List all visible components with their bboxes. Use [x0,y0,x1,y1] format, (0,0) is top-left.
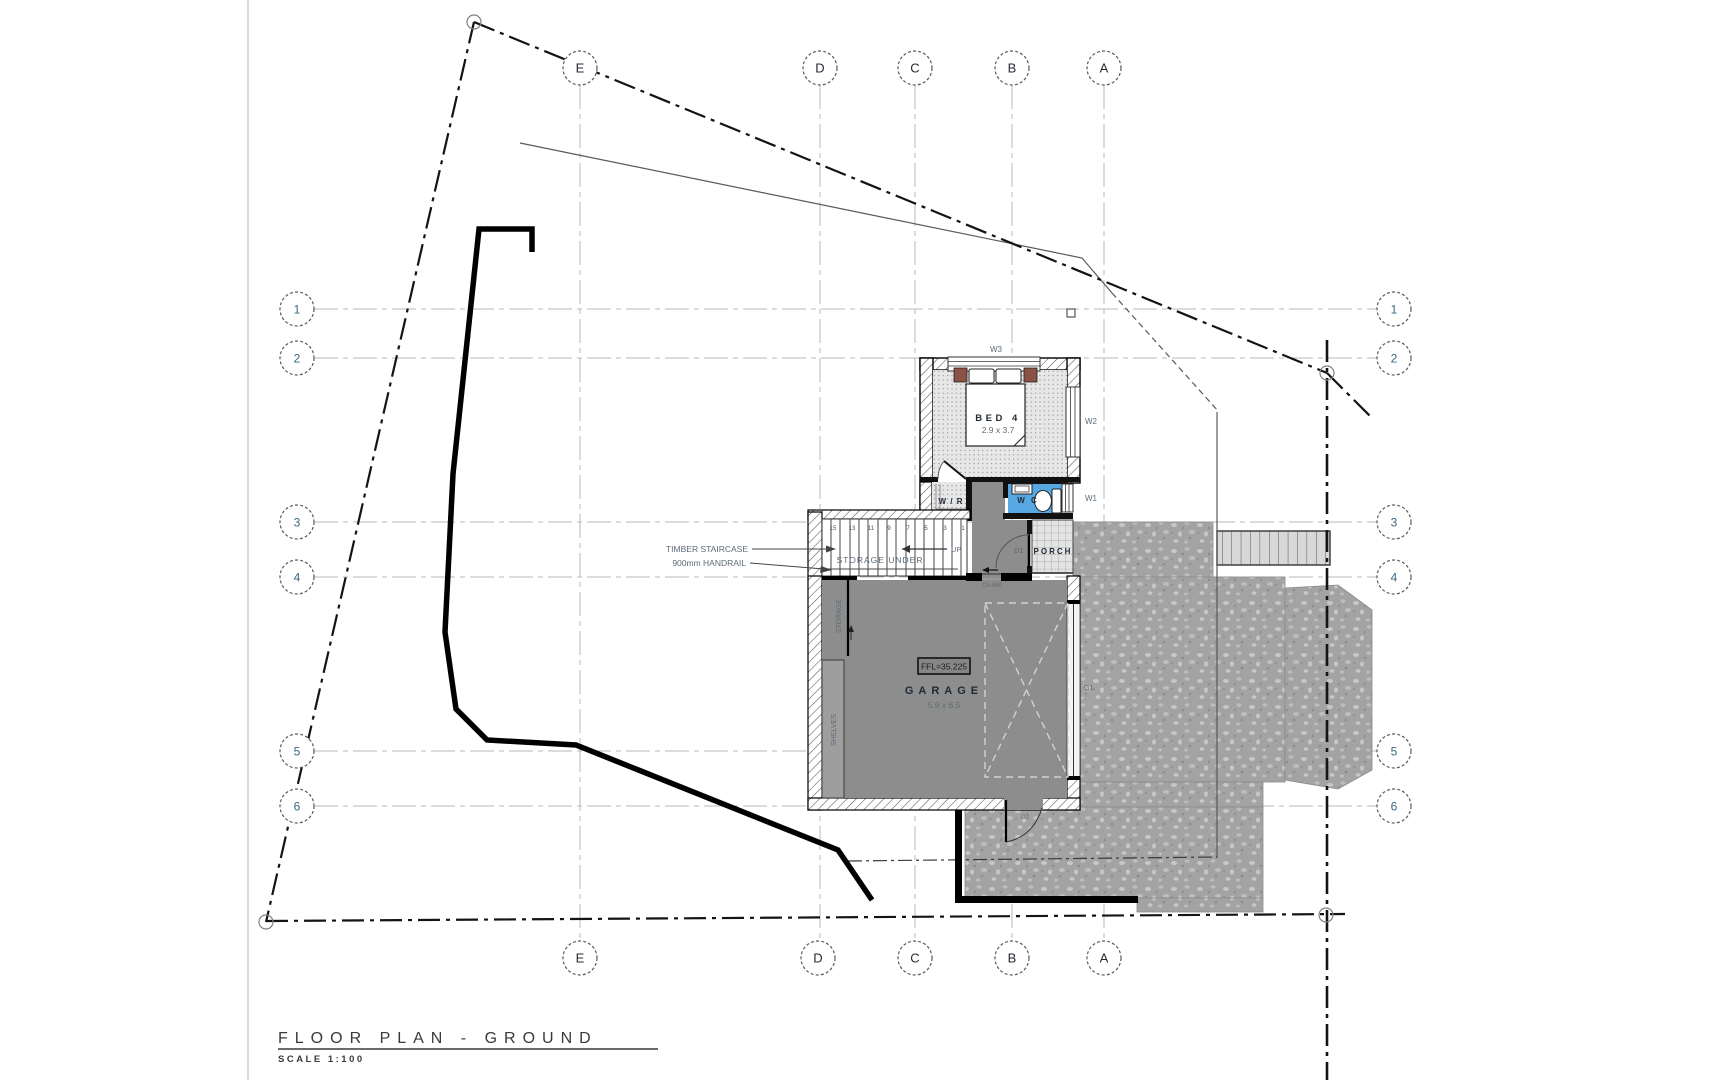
grid-bubble-4-left: 4 [280,560,314,594]
d2-label: D2 [1021,814,1030,821]
timber-staircase-label: TIMBER STAIRCASE [666,544,748,554]
wc-top-wall [1003,479,1068,484]
g1-label: G1 [1084,685,1093,692]
grid-bubble-3-left: 3 [280,505,314,539]
bedside-table-right [1024,368,1037,382]
storage-under-label: STORAGE UNDER [837,555,924,565]
tread-number: 11 [868,526,875,532]
grid-bubble-1-right: 1 [1377,292,1411,326]
grid-bubble-D-bottom: D [801,941,835,975]
exterior-steps [1217,531,1330,565]
pillow-right [996,369,1021,383]
stair-left-wall [808,512,822,580]
grid-bubble-A-bottom: A [1087,941,1121,975]
wc-label: W C [1017,496,1039,505]
grid-number: 6 [294,800,301,814]
grid-letter: E [576,61,585,76]
tread-number: 13 [849,526,856,532]
grid-letter: D [815,61,824,76]
tread-number: 15 [830,526,837,532]
wc-bottom-wall [1003,513,1073,519]
porch-wall-upper [1027,520,1032,534]
grid-number: 2 [294,352,301,366]
storage-label: STORAGE [836,599,843,633]
grid-number: 2 [1391,352,1398,366]
grid-letter: A [1100,61,1109,76]
window-w2 [1066,387,1080,457]
threshold-label: CS-860 [982,583,1003,589]
grid-number: 3 [294,516,301,530]
wr-label: W / R [939,497,964,506]
w1-label: W1 [1085,494,1098,503]
grid-letter: E [576,951,585,966]
floor-plan-page: 15 13 11 9 7 5 3 1 STORAGE UNDER UP STOR [0,0,1727,1080]
grid-letter: C [910,951,919,966]
partition-wall [920,477,938,482]
grid-bubble-4-right: 4 [1377,560,1411,594]
drawing-scale: SCALE 1:100 [278,1054,365,1065]
shelves-label: SHELVES [831,714,838,746]
garage-label: GARAGE [905,685,983,697]
grid-bubble-6-left: 6 [280,789,314,823]
grid-number: 5 [1391,745,1398,759]
garage-left-wall [808,576,822,810]
floor-plan-drawing: 15 13 11 9 7 5 3 1 STORAGE UNDER UP STOR [0,0,1727,1080]
grid-bubble-5-left: 5 [280,734,314,768]
grid-bubble-E-top: E [563,51,597,85]
grid-bubble-D-top: D [803,51,837,85]
wc-basin [1012,484,1032,494]
grid-bubble-3-right: 3 [1377,505,1411,539]
d1-label: D1 [1014,546,1024,555]
w2-label: W2 [1085,417,1098,426]
survey-marker-square [1067,309,1075,317]
garage-panel-door-g1 [1067,600,1080,780]
pillow-left [969,369,994,383]
grid-bubble-B-top: B [995,51,1029,85]
grid-bubble-B-bottom: B [995,941,1029,975]
bed4-dims: 2.9 x 3.7 [982,425,1015,435]
grid-letter: A [1100,951,1109,966]
porch-label: PORCH [1034,547,1073,556]
garage-entry-wall [966,573,982,581]
garage-dims: 5.9 x 6.5 [928,700,961,710]
grid-letter: C [910,61,919,76]
drawing-title: FLOOR PLAN - GROUND [278,1030,598,1047]
ffl-tag: FFL=35.225 [918,658,970,674]
grid-bubble-6-right: 6 [1377,789,1411,823]
window-w1 [1062,484,1073,512]
grid-number: 1 [1391,303,1398,317]
grid-bubble-2-right: 2 [1377,341,1411,375]
bed4-label: BED 4 [975,413,1020,424]
grid-number: 3 [1391,516,1398,530]
w3-label: W3 [990,345,1003,354]
grid-number: 4 [294,571,301,585]
garage-entry-wall [1001,573,1032,581]
grid-number: 5 [294,745,301,759]
grid-bubble-C-bottom: C [898,941,932,975]
grid-letter: B [1008,61,1017,76]
stair-top-wall [808,510,970,519]
grid-letter: D [813,951,822,966]
up-label: UP [951,545,961,554]
ffl-value: FFL=35.225 [921,662,967,672]
grid-number: 1 [294,303,301,317]
grid-number: 4 [1391,571,1398,585]
grid-bubble-1-left: 1 [280,292,314,326]
grid-bubble-C-top: C [898,51,932,85]
grid-number: 6 [1391,800,1398,814]
bedside-table-left [954,368,967,382]
grid-bubble-A-top: A [1087,51,1121,85]
grid-bubble-5-right: 5 [1377,734,1411,768]
wc-left-wall [1003,484,1008,498]
grid-bubble-E-bottom: E [563,941,597,975]
handrail-label: 900mm HANDRAIL [672,558,746,568]
grid-letter: B [1008,951,1017,966]
grid-bubble-2-left: 2 [280,341,314,375]
